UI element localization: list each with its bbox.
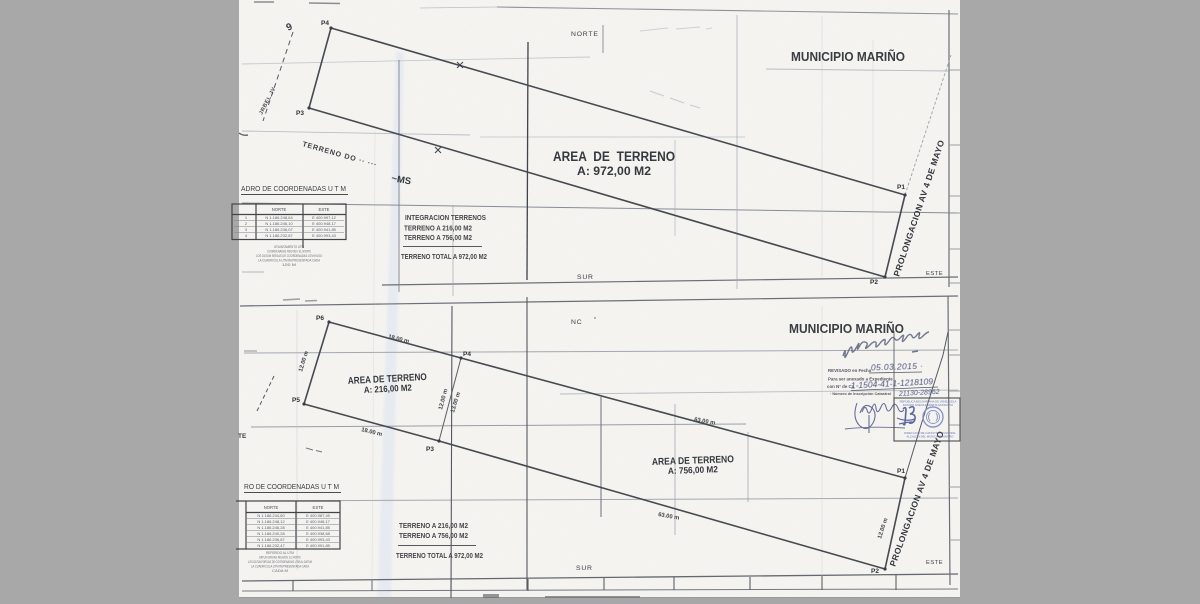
svg-text:TERRENO A 756,00 M2: TERRENO A 756,00 M2 [404, 233, 472, 242]
svg-text:TERRENO A 756,00 M2: TERRENO A 756,00 M2 [399, 531, 468, 540]
svg-text:N 1.186.248,12: N 1.186.248,12 [257, 519, 285, 524]
svg-text:E 400.948,17: E 400.948,17 [312, 221, 337, 226]
svg-text:N 1.186.236,07: N 1.186.236,07 [265, 227, 293, 232]
svg-text:E 400.993,43: E 400.993,43 [312, 233, 337, 238]
svg-text:SUR: SUR [577, 274, 594, 281]
svg-text:P4: P4 [463, 351, 471, 358]
svg-text:TERRENO A 216,00 M2: TERRENO A 216,00 M2 [399, 521, 468, 530]
svg-text:100 M: 100 M [282, 263, 296, 267]
svg-text:P2: P2 [870, 279, 878, 286]
svg-text:A: 756,00 M2: A: 756,00 M2 [668, 464, 718, 476]
svg-text:E 400.938,68: E 400.938,68 [306, 531, 331, 536]
svg-text:A: 972,00 M2: A: 972,00 M2 [577, 164, 651, 178]
svg-text:P2: P2 [871, 568, 879, 575]
svg-text:E 400.997,12: E 400.997,12 [312, 215, 337, 220]
svg-text:TE: TE [238, 433, 247, 440]
svg-text:ADRO DE COORDENADAS U T M: ADRO DE COORDENADAS U T M [241, 186, 346, 193]
svg-text:P1: P1 [897, 184, 905, 191]
svg-text:REVISADO en Fecha: REVISADO en Fecha [828, 368, 872, 373]
svg-text:P1: P1 [897, 468, 905, 475]
svg-text:SUR: SUR [576, 565, 593, 572]
svg-text:REFERIDO AL UTM: REFERIDO AL UTM [266, 551, 294, 555]
svg-text:E 400.987,45: E 400.987,45 [306, 513, 331, 518]
svg-text:TERRENO TOTAL A 972,00 M2: TERRENO TOTAL A 972,00 M2 [396, 551, 483, 560]
svg-text:P3: P3 [296, 110, 304, 117]
svg-text:ESTE: ESTE [313, 505, 324, 510]
svg-text:ESTE: ESTE [926, 271, 943, 277]
svg-text:P6: P6 [316, 315, 324, 322]
svg-text:N 1.186.244,60: N 1.186.244,60 [257, 513, 285, 518]
svg-text:NORTE: NORTE [264, 505, 279, 510]
svg-text:LA CUADRICULA UTM REPRESENTADA: LA CUADRICULA UTM REPRESENTADA CADA [251, 565, 309, 569]
svg-text:NORTE: NORTE [571, 31, 599, 38]
svg-text:CADA M: CADA M [272, 569, 288, 573]
svg-text:E 400.941,85: E 400.941,85 [306, 525, 331, 530]
svg-text:N 1.186.240,28: N 1.186.240,28 [257, 531, 285, 536]
svg-text:LOS DATUM SIRGAS DE COORDENADA: LOS DATUM SIRGAS DE COORDENADAS UTM HUSO [256, 254, 322, 258]
svg-text:P4: P4 [321, 20, 329, 27]
svg-text:ESTE: ESTE [926, 560, 943, 566]
svg-text:E 400.993,43: E 400.993,43 [306, 537, 331, 542]
svg-text:MUNICIPIO MARIÑO: MUNICIPIO MARIÑO [791, 49, 905, 64]
svg-text:E 400.948,17: E 400.948,17 [306, 519, 331, 524]
svg-text:N 1.186.246,10: N 1.186.246,10 [265, 221, 293, 226]
svg-text:P3: P3 [426, 446, 434, 453]
svg-text:*: * [594, 317, 596, 323]
svg-text:AREA DE TERRENO: AREA DE TERRENO [553, 149, 675, 164]
svg-text:NORTE: NORTE [272, 207, 287, 212]
svg-text:COORDENADAS REGVEN. EL NORTE: COORDENADAS REGVEN. EL NORTE [267, 250, 311, 254]
svg-text:MUNICIPIO MARIÑO: MUNICIPIO MARIÑO [789, 321, 904, 336]
svg-text:ALCALDIA DEL MUNICIPIO MARIÑO: ALCALDIA DEL MUNICIPIO MARIÑO [907, 434, 955, 439]
svg-text:N 1.186.248,64: N 1.186.248,64 [265, 215, 293, 220]
svg-text:N 1.186.246,28: N 1.186.246,28 [257, 525, 285, 530]
svg-text:TERRENO TOTAL A 972,00 M2: TERRENO TOTAL A 972,00 M2 [401, 252, 487, 261]
svg-text:RO DE COORDENADAS U T M: RO DE COORDENADAS U T M [244, 484, 339, 491]
svg-text:E 400.991,85: E 400.991,85 [306, 543, 331, 548]
svg-text:· Número de Inscripción Catast: · Número de Inscripción Catastral [830, 392, 891, 396]
svg-text:LA CUADRICULA UTM REPRESENTADA: LA CUADRICULA UTM REPRESENTADA CADA [258, 259, 320, 263]
svg-text:DATUM SIRGAS REGVEN. EL NORTE: DATUM SIRGAS REGVEN. EL NORTE [259, 556, 301, 560]
svg-text:E 400.941,85: E 400.941,85 [312, 227, 337, 232]
svg-text:N 1.186.232,87: N 1.186.232,87 [265, 233, 293, 238]
svg-text:N 1.186.232,47: N 1.186.232,47 [257, 543, 285, 548]
svg-text:INTEGRACION TERRENOS: INTEGRACION TERRENOS [405, 213, 486, 222]
svg-text:05.03.2015 ·: 05.03.2015 · [871, 361, 924, 373]
svg-text:N 1.186.236,87: N 1.186.236,87 [257, 537, 285, 542]
svg-text:LEVANTAMIENTO UTM: LEVANTAMIENTO UTM [274, 245, 304, 249]
svg-text:ESTE: ESTE [319, 207, 330, 212]
svg-text:LOS DATUM SIRGAS DE COORDENADA: LOS DATUM SIRGAS DE COORDENADAS UTM AL D… [248, 560, 312, 564]
svg-text:NC: NC [571, 319, 582, 326]
svg-text:TERRENO A 216,00 M2: TERRENO A 216,00 M2 [404, 224, 472, 233]
svg-text:P5: P5 [292, 397, 300, 404]
